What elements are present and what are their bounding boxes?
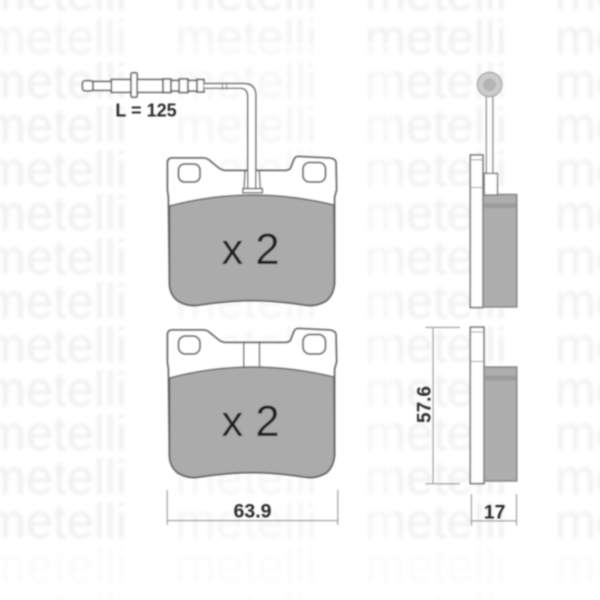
svg-text:x 2: x 2 xyxy=(221,398,279,446)
svg-text:63.9: 63.9 xyxy=(234,501,272,523)
svg-text:L = 125: L = 125 xyxy=(115,101,176,121)
svg-text:57.6: 57.6 xyxy=(415,386,436,423)
svg-text:x 2: x 2 xyxy=(221,226,279,274)
svg-text:17: 17 xyxy=(484,502,506,524)
